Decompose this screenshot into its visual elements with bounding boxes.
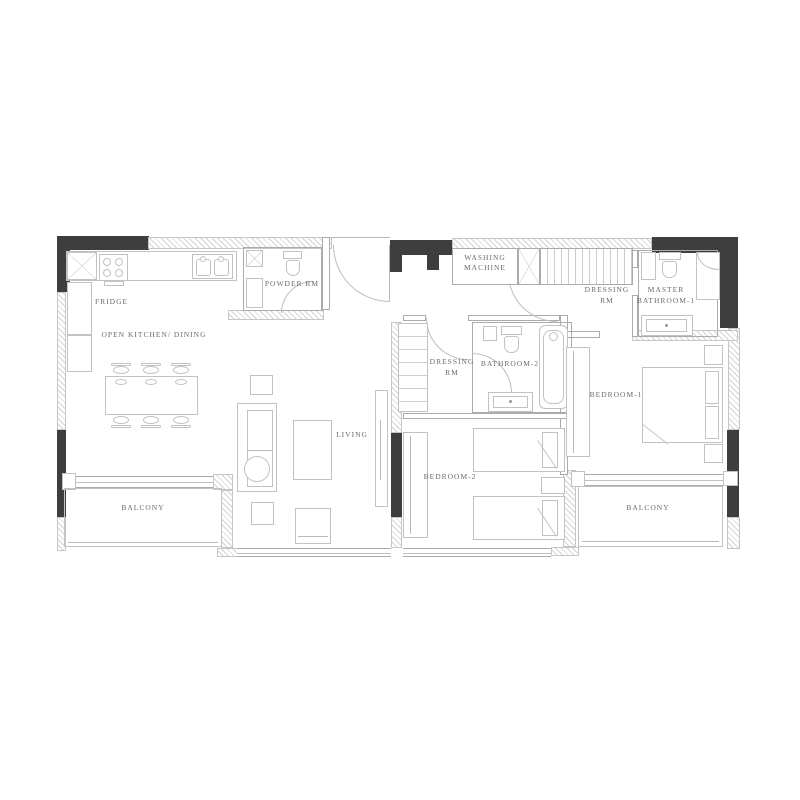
label-text: POWDER RM [265,278,319,289]
dining-chair-back [111,425,131,428]
bathroom2-toilet-tank [501,326,522,335]
fridge-cabinet [67,282,92,335]
coffee-table [293,420,332,480]
entry-opening-line [332,237,390,238]
media-panel [375,390,388,507]
wall-dark-living-partition [391,433,402,517]
armchair-back-line [298,536,328,537]
burner [103,269,111,277]
vanity-drain [509,400,512,403]
balcony-right-window-post-west [571,471,585,487]
bedroom1-wardrobe [566,347,590,457]
bathroom2-toilet-bowl [504,336,519,353]
dining-chair-seat [143,416,159,424]
label-text: BATHROOM-2 [481,358,539,369]
wall-dark-entry [390,240,460,255]
wall-dark-top-right-v [720,237,738,328]
bathroom2-shelf [483,326,497,341]
dining-chair-back [171,425,191,428]
bathtub-inner [543,330,564,404]
pillow [705,406,719,439]
dining-chair-seat [113,416,129,424]
label-text: DRESSING [585,284,630,295]
entry-door-arc [333,245,390,302]
bedroom1-wardrobe-line [573,351,574,453]
room-label-fridge: FRIDGE [95,296,128,307]
masterbath-toilet-tank [659,252,681,260]
entry-door-leaf [389,245,390,302]
dining-chair-seat [173,366,189,374]
wall-dark-entry-tooth-1 [390,255,402,272]
utility-cabinet [518,248,540,285]
label-text: MASTER [637,284,695,295]
side-table [250,375,273,395]
wall-dark-top-left-h [57,236,149,250]
label-text: WASHING [464,253,506,263]
wall-hatch-right-lower [727,517,740,549]
faucet [200,256,206,262]
label-text: OPEN KITCHEN/ DINING [102,329,207,340]
living-south-window [237,548,391,557]
balcony-left-outline [64,488,222,547]
nightstand [704,345,723,365]
armchair [295,508,331,544]
wall-suite-north-a [403,315,426,321]
burner [115,258,123,266]
wall-powder-east [322,237,330,310]
bedroom2-wardrobe [403,432,428,538]
bedroom2-south-window [403,548,551,557]
balcony-right-outline [578,486,723,547]
wall-suite-south [403,413,572,419]
room-label-open-kitchen-dining: OPEN KITCHEN/ DINING [102,329,207,340]
stove-symbol [99,254,128,281]
side-table [251,502,274,525]
dining-chair-seat [143,366,159,374]
faucet [218,256,224,262]
bathroom2-vanity [488,392,533,412]
powder-sink [246,250,263,267]
room-label-bedroom-1: BEDROOM-1 [590,389,643,400]
label-text: RM [585,295,630,306]
powder-toilet-tank [283,251,302,259]
tall-cabinet [67,335,92,372]
label-text: BEDROOM-1 [590,389,643,400]
bathtub-drain [549,332,558,341]
balcony-left-sliding-window [66,476,213,488]
label-text: LIVING [336,429,368,440]
burner [115,269,123,277]
lounge-chair [244,456,270,482]
balcony-left-rail [68,542,218,543]
bedroom2-suite-door-arc [426,318,468,360]
room-label-balcony-right: BALCONY [626,502,669,513]
balcony-right-rail [582,541,719,542]
dining-chair-seat [173,416,189,424]
burner [103,258,111,266]
room-label-bathroom-2: BATHROOM-2 [481,358,539,369]
floor-plan: FRIDGE OPEN KITCHEN/ DINING POWDER RM WA… [0,0,800,800]
bedroom2-wardrobe-line [410,436,411,534]
balcony-right-window-post-east [723,471,738,486]
dining-chair-seat [113,366,129,374]
oven-front [104,281,124,286]
plate [145,379,157,385]
plate [175,379,187,385]
nightstand [541,477,565,494]
room-label-powder-room: POWDER RM [265,278,319,289]
masterbath-toilet-bowl [662,261,677,278]
room-label-dressing-master: DRESSING RM [585,284,630,306]
sink-symbol [192,254,233,279]
balcony-right-sliding-window [585,474,723,486]
masterbath-counter [641,252,656,280]
label-text: RM [430,367,475,378]
wall-hatch-right-upper [728,328,740,430]
masterbath-vanity [641,315,693,336]
wall-hatch-living-partition-lower [391,517,402,548]
room-label-washing-machine: WASHING MACHINE [464,253,506,273]
powder-toilet-bowl [286,260,300,276]
dining-chair-back [141,425,161,428]
plate [115,379,127,385]
nightstand [704,444,723,463]
room-label-master-bathroom: MASTER BATHROOM-1 [637,284,695,306]
room-label-bedroom-2: BEDROOM-2 [424,471,477,482]
tv-console-divider [247,450,273,451]
room-label-living: LIVING [336,429,368,440]
room-label-balcony-left: BALCONY [121,502,164,513]
room-label-dressing-2: DRESSING RM [430,356,475,378]
pillow [705,371,719,404]
label-text: BATHROOM-1 [637,295,695,306]
powder-cabinet [246,278,263,308]
pier-balcony-left [221,490,233,548]
wall-hatch-left-upper [57,292,66,430]
kitchen-corner-unit [67,252,97,280]
label-text: MACHINE [464,263,506,273]
label-text: BEDROOM-2 [424,471,477,482]
vanity-drain [665,324,668,327]
dressing2-wardrobe [398,323,428,412]
label-text: DRESSING [430,356,475,367]
pier-balcony-right-foot [551,547,579,556]
dressing-master-closet [540,248,633,285]
wall-dark-entry-tooth-2 [427,255,439,270]
label-text: BALCONY [626,502,669,513]
label-text: FRIDGE [95,296,128,307]
label-text: BALCONY [121,502,164,513]
media-panel-line [380,420,381,480]
